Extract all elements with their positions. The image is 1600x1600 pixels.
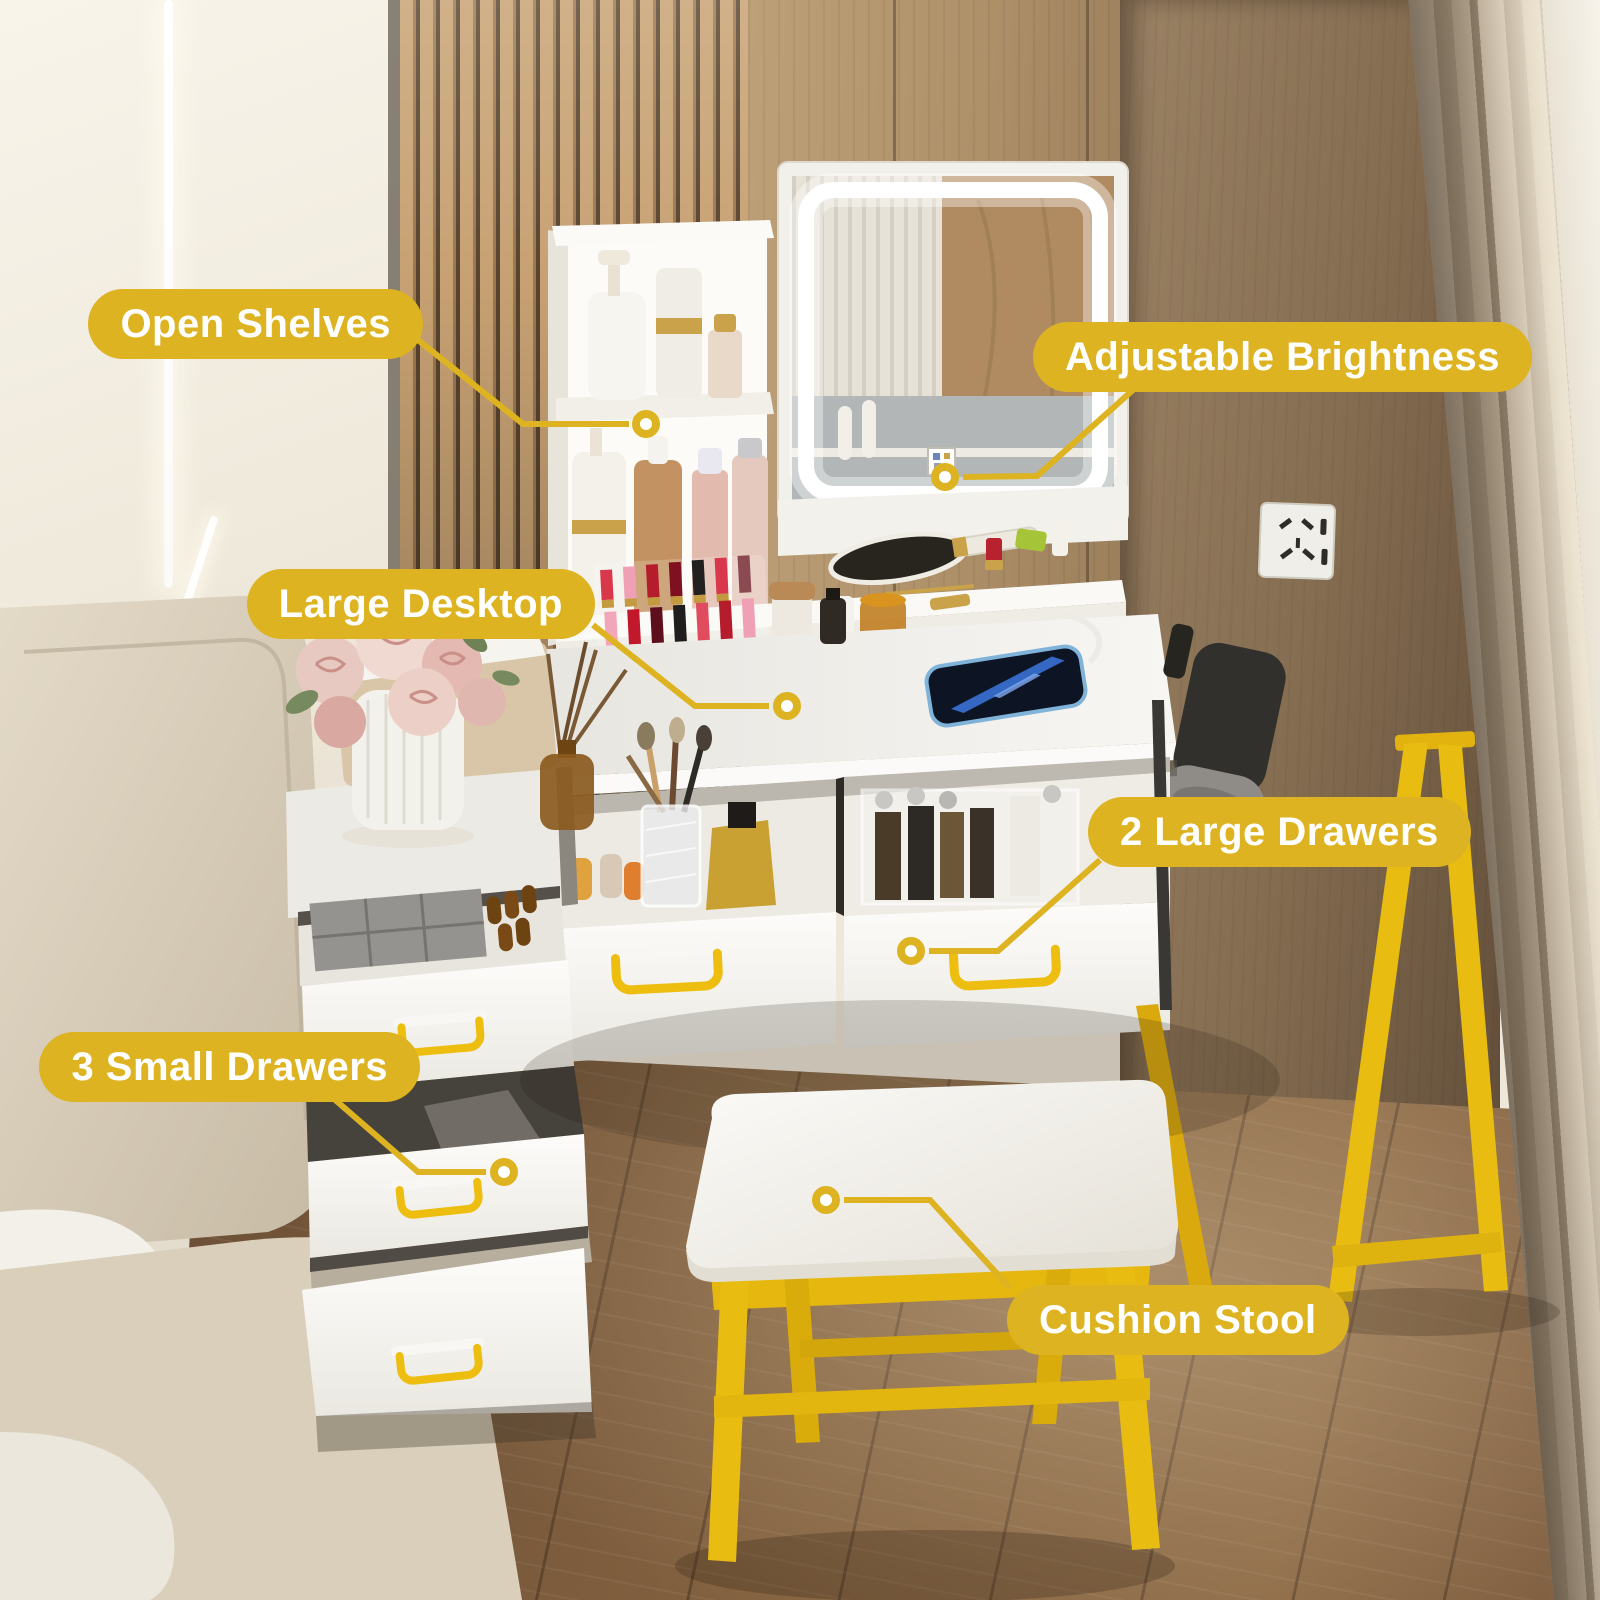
callout-large-desktop: Large Desktop (247, 569, 595, 639)
stool-shadow (675, 1530, 1175, 1600)
red-lipstick (985, 538, 1003, 570)
small-drawer-cabinet (298, 885, 596, 1452)
dot-two-large-drawers (901, 941, 921, 961)
callout-two-large-drawers: 2 Large Drawers (1088, 797, 1471, 867)
reflected-brush (838, 406, 852, 460)
dryer-mount-hook (1162, 622, 1195, 679)
callout-cushion-stool: Cushion Stool (1007, 1285, 1349, 1355)
annotated-product-image: Open Shelves Adjustable Brightness Large… (0, 0, 1600, 1600)
callout-open-shelves: Open Shelves (88, 289, 423, 359)
acrylic-organizer (862, 785, 1078, 904)
stool-cushion (686, 1080, 1178, 1268)
green-cosmetic (1015, 528, 1047, 552)
dot-large-desktop (777, 696, 797, 716)
white-cosmetic (1052, 520, 1068, 556)
gold-band-bottle (656, 268, 702, 398)
drawer-divider-gap (836, 777, 844, 916)
stool-front-brace (714, 1378, 1150, 1418)
dot-three-small-drawers (494, 1162, 514, 1182)
wall-socket (1259, 503, 1336, 580)
dot-cushion-stool (816, 1190, 836, 1210)
callout-adjustable-brightness: Adjustable Brightness (1033, 322, 1532, 392)
callout-three-small-drawers: 3 Small Drawers (39, 1032, 420, 1102)
reflected-brush (862, 400, 876, 458)
dot-adjustable-brightness (935, 467, 955, 487)
dot-open-shelves (636, 414, 656, 434)
